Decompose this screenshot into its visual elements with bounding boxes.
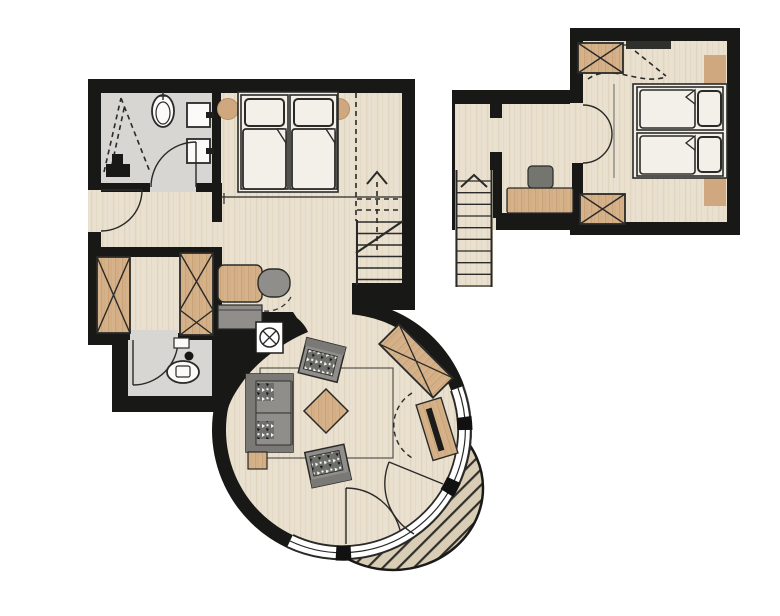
wc-drain-dot [185,352,194,361]
floor-plan-canvas [0,0,780,616]
landing-desk [507,188,573,213]
upper-double-bed [633,84,727,178]
window-post-2 [447,480,454,493]
ground-floor-plan [88,79,483,570]
hall-bedroom-passage [212,222,222,247]
sofa-pillow-pattern-2 [257,421,274,439]
upper-wardrobe-top [578,43,623,73]
hall-floor [101,192,212,247]
window-post-1 [464,417,465,430]
washbasin-2-tap [206,148,214,154]
upper-floor-plan [452,28,740,287]
partition-stub-top [490,95,502,118]
nightstand-top [704,55,726,84]
sofa-pillow-pattern-1 [257,383,274,401]
double-bed [238,92,338,192]
nightstand-bottom [704,176,726,206]
sofa-backrest [246,381,256,445]
armchair-bottom [305,444,352,488]
pillow-left [245,99,284,126]
sofa [246,374,293,452]
side-table [248,452,267,469]
floor-shaft-symbol [256,322,283,353]
wardrobe-right [180,253,213,335]
duvet-left [243,129,286,189]
stairs-bottom-wall [352,283,415,310]
wc-door-gap [130,330,178,340]
desk-chair [258,269,290,297]
bathroom-door-gap [150,181,196,192]
wardrobe-left [97,257,130,333]
upper-pillow-2 [698,137,721,172]
upper-pillow-1 [698,91,721,126]
desk [218,265,262,302]
upper-door-gap [570,103,583,163]
skylight-bar [626,41,671,49]
entry-door-gap [88,190,101,232]
floor-plan-drawing [0,0,780,616]
washbasin-1-tap [206,112,214,118]
duvet-right [292,129,335,189]
landing-chair [528,166,553,188]
pillow-right [294,99,333,126]
wc-toilet-seat [176,366,190,377]
upper-staircase [455,170,493,287]
shower-wall-stub [106,164,130,177]
bedside-stool-left [218,99,239,120]
wc-cistern [174,338,189,348]
sofa-armrest-top [246,374,293,381]
upper-wardrobe-bottom [580,194,625,224]
sofa-armrest-bottom [246,445,293,452]
